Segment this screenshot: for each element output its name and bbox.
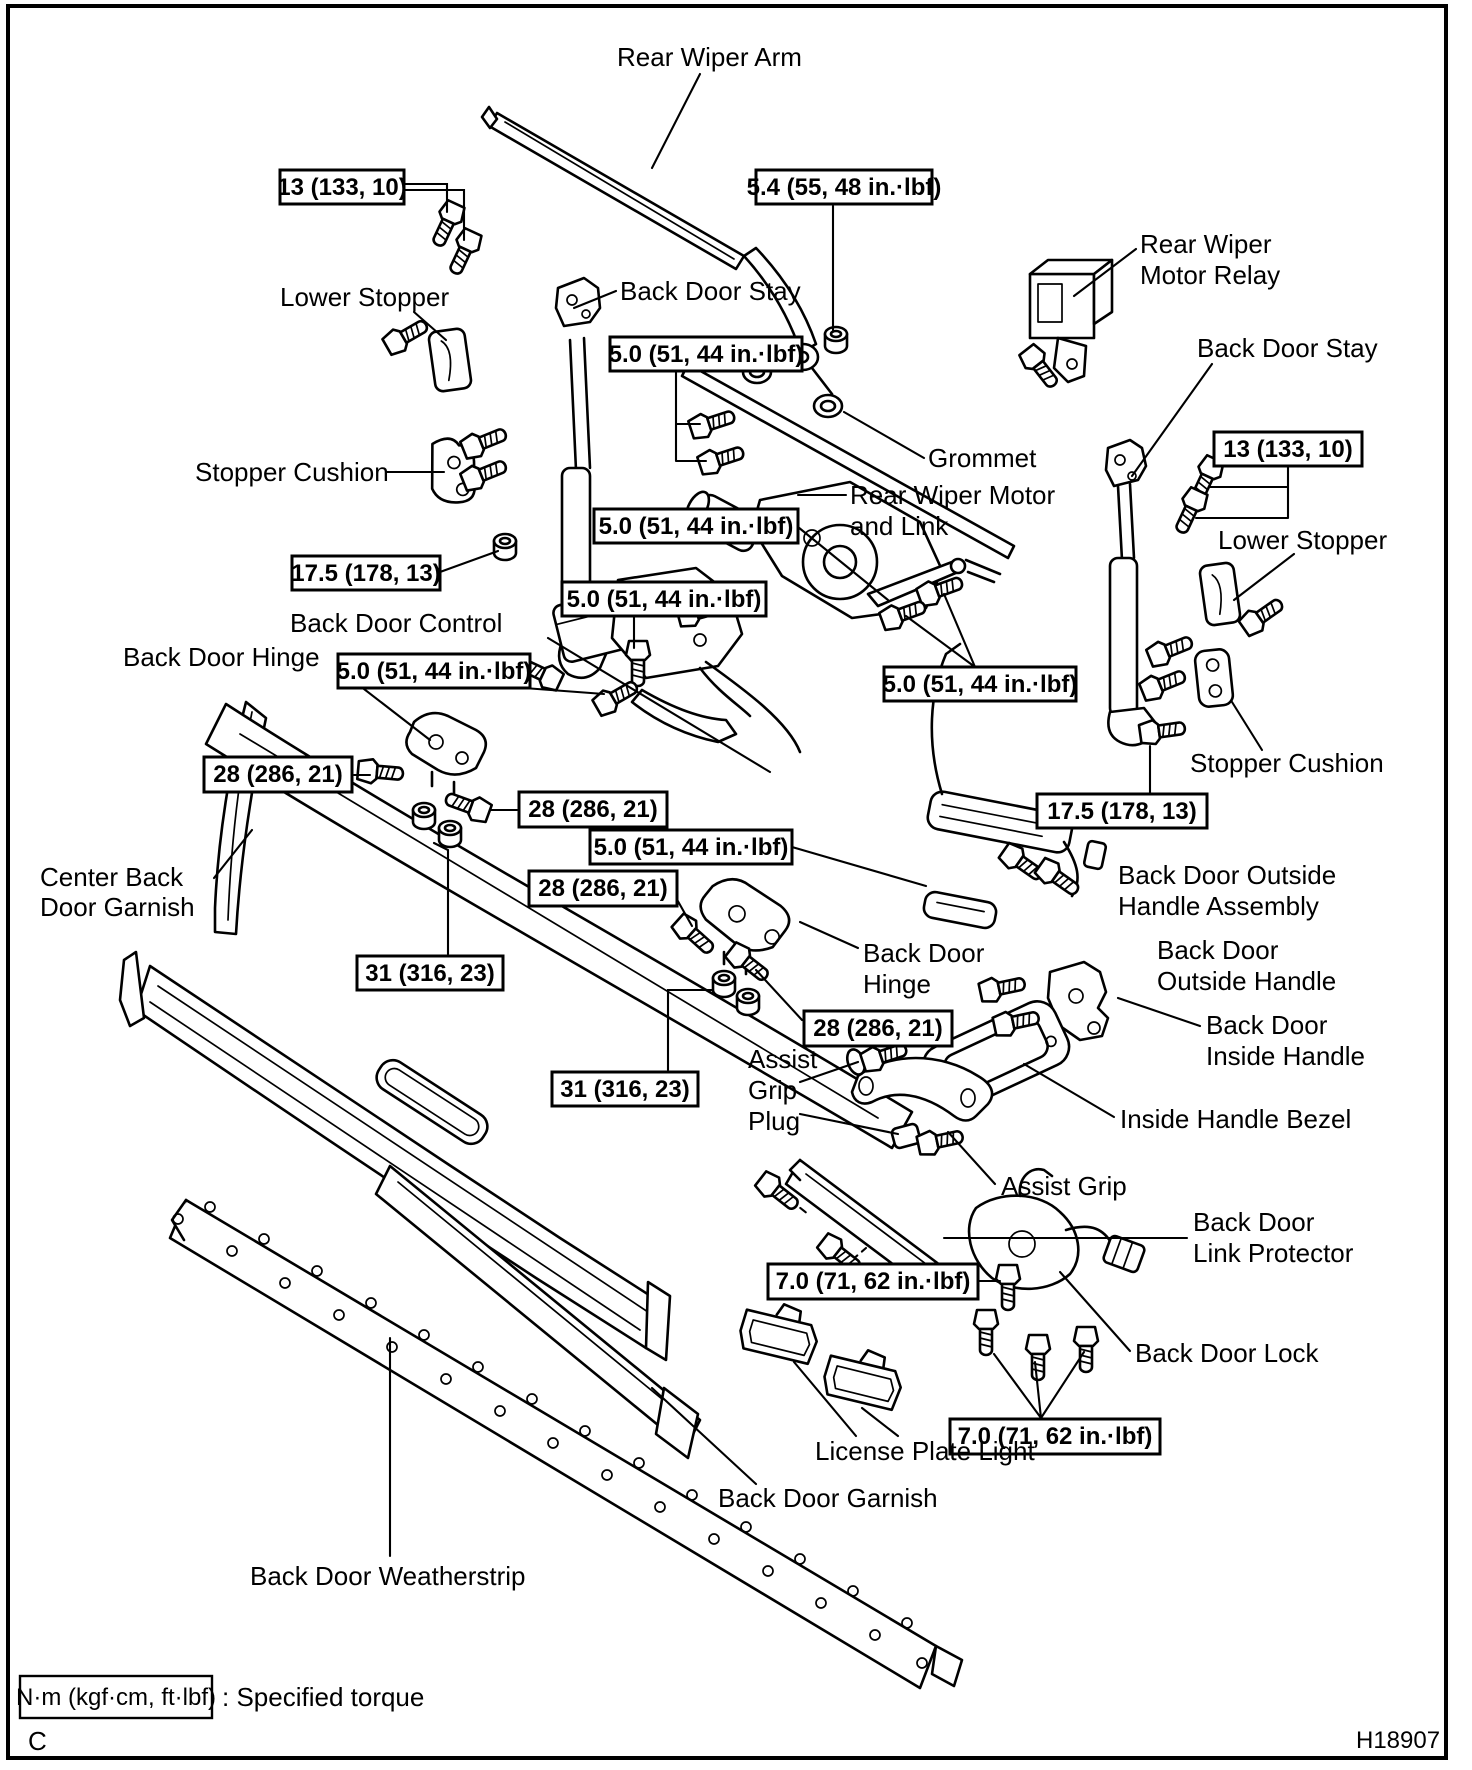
label-back-door-lock: Back Door Lock bbox=[1135, 1338, 1320, 1368]
torque-box-54: 5.4 (55, 48 in.·lbf) bbox=[747, 170, 942, 204]
torque-value: 28 (286, 21) bbox=[538, 875, 667, 902]
torque-value: 17.5 (178, 13) bbox=[1047, 798, 1196, 825]
torque-value: 5.0 (51, 44 in.·lbf) bbox=[567, 586, 762, 613]
torque-legend: N·m (kgf·cm, ft·lbf) : Specified torque bbox=[16, 1676, 424, 1718]
label-back-door-stay-right: Back Door Stay bbox=[1197, 333, 1378, 363]
torque-box-50-f: 5.0 (51, 44 in.·lbf) bbox=[590, 830, 792, 864]
torque-value: 28 (286, 21) bbox=[213, 761, 342, 788]
diagram-canvas: 13 (133, 10) 5.4 (55, 48 in.·lbf) 5.0 (5… bbox=[0, 0, 1472, 1770]
label-outside-handle-assembly-1: Back Door Outside bbox=[1118, 860, 1336, 890]
label-back-door-hinge-left: Back Door Hinge bbox=[123, 642, 320, 672]
label-back-door-hinge-center-1: Back Door bbox=[863, 938, 985, 968]
torque-box-31-1: 31 (316, 23) bbox=[357, 956, 503, 990]
label-inside-handle-1: Back Door bbox=[1206, 1010, 1328, 1040]
torque-value: 31 (316, 23) bbox=[365, 960, 494, 987]
figure-code: H18907 bbox=[1356, 1727, 1440, 1754]
torque-value: 5.0 (51, 44 in.·lbf) bbox=[599, 513, 794, 540]
label-license-plate-light: License Plate Light bbox=[815, 1436, 1035, 1466]
label-stopper-cushion-right: Stopper Cushion bbox=[1190, 748, 1384, 778]
label-outside-handle-1: Back Door bbox=[1157, 935, 1279, 965]
label-back-door-stay-left: Back Door Stay bbox=[620, 276, 801, 306]
torque-box-50-e: 5.0 (51, 44 in.·lbf) bbox=[883, 667, 1078, 701]
label-inside-handle-2: Inside Handle bbox=[1206, 1041, 1365, 1071]
label-outside-handle-2: Outside Handle bbox=[1157, 966, 1336, 996]
torque-value: 5.0 (51, 44 in.·lbf) bbox=[883, 671, 1078, 698]
torque-value: 17.5 (178, 13) bbox=[291, 560, 440, 587]
license-lamp-2 bbox=[820, 1340, 908, 1414]
label-assist-grip: Assist Grip bbox=[1001, 1171, 1127, 1201]
label-link-protector-2: Link Protector bbox=[1193, 1238, 1354, 1268]
label-assist-grip-plug-1: Assist bbox=[748, 1044, 818, 1074]
torque-value: 28 (286, 21) bbox=[528, 796, 657, 823]
label-assist-grip-plug-2: Grip bbox=[748, 1075, 797, 1105]
label-back-door-hinge-center-2: Hinge bbox=[863, 969, 931, 999]
legend-unit-box: N·m (kgf·cm, ft·lbf) bbox=[16, 1684, 216, 1711]
lower-stopper-left-part bbox=[428, 328, 472, 392]
torque-value: 7.0 (71, 62 in.·lbf) bbox=[776, 1268, 971, 1295]
torque-box-28-3: 28 (286, 21) bbox=[529, 871, 677, 906]
torque-value: 5.0 (51, 44 in.·lbf) bbox=[337, 658, 532, 685]
torque-box-70-1: 7.0 (71, 62 in.·lbf) bbox=[768, 1264, 978, 1299]
torque-value: 5.0 (51, 44 in.·lbf) bbox=[594, 834, 789, 861]
label-rear-wiper-motor-link-2: and Link bbox=[850, 511, 949, 541]
torque-box-28-4: 28 (286, 21) bbox=[804, 1011, 952, 1046]
stopper-cushion-right-part bbox=[1194, 648, 1234, 707]
back-door-hinge-left-part bbox=[406, 713, 485, 796]
page-marker: C bbox=[28, 1726, 47, 1756]
torque-box-50-d: 5.0 (51, 44 in.·lbf) bbox=[337, 654, 532, 688]
label-grommet: Grommet bbox=[928, 443, 1037, 473]
label-link-protector-1: Back Door bbox=[1193, 1207, 1315, 1237]
torque-box-175-right: 17.5 (178, 13) bbox=[1037, 794, 1207, 828]
torque-box-28-2: 28 (286, 21) bbox=[519, 792, 667, 827]
torque-box-13-right: 13 (133, 10) bbox=[1214, 432, 1362, 466]
label-lower-stopper-left: Lower Stopper bbox=[280, 282, 449, 312]
torque-value: 5.0 (51, 44 in.·lbf) bbox=[609, 341, 804, 368]
label-back-door-garnish: Back Door Garnish bbox=[718, 1483, 938, 1513]
torque-box-28-1: 28 (286, 21) bbox=[204, 757, 352, 792]
torque-value: 13 (133, 10) bbox=[1223, 436, 1352, 463]
torque-box-50-a: 5.0 (51, 44 in.·lbf) bbox=[609, 337, 804, 371]
torque-value: 13 (133, 10) bbox=[277, 174, 406, 201]
torque-value: 28 (286, 21) bbox=[813, 1015, 942, 1042]
torque-box-13-left: 13 (133, 10) bbox=[277, 170, 406, 204]
torque-box-50-c: 5.0 (51, 44 in.·lbf) bbox=[562, 582, 766, 616]
torque-box-50-b: 5.0 (51, 44 in.·lbf) bbox=[594, 509, 798, 543]
torque-value: 5.4 (55, 48 in.·lbf) bbox=[747, 174, 942, 201]
label-inside-handle-bezel: Inside Handle Bezel bbox=[1120, 1104, 1351, 1134]
label-back-door-control: Back Door Control bbox=[290, 608, 502, 638]
label-lower-stopper-right: Lower Stopper bbox=[1218, 525, 1387, 555]
grommet-part-2 bbox=[814, 395, 842, 417]
label-center-back-door-garnish-1: Center Back bbox=[40, 862, 184, 892]
torque-value: 31 (316, 23) bbox=[560, 1076, 689, 1103]
label-center-back-door-garnish-2: Door Garnish bbox=[40, 892, 195, 922]
exploded-parts-diagram: 13 (133, 10) 5.4 (55, 48 in.·lbf) 5.0 (5… bbox=[0, 0, 1472, 1770]
label-outside-handle-assembly-2: Handle Assembly bbox=[1118, 891, 1319, 921]
outside-handle-part bbox=[922, 890, 998, 929]
license-lamp-1 bbox=[736, 1294, 824, 1368]
label-rear-wiper-arm: Rear Wiper Arm bbox=[617, 42, 802, 72]
torque-box-31-2: 31 (316, 23) bbox=[552, 1072, 698, 1106]
legend-meaning: : Specified torque bbox=[222, 1682, 424, 1712]
back-door-panel bbox=[120, 952, 670, 1360]
label-rear-wiper-motor-relay-1: Rear Wiper bbox=[1140, 229, 1272, 259]
label-back-door-weatherstrip: Back Door Weatherstrip bbox=[250, 1561, 526, 1591]
label-assist-grip-plug-3: Plug bbox=[748, 1106, 800, 1136]
label-stopper-cushion-left: Stopper Cushion bbox=[195, 457, 389, 487]
lower-stopper-right-part bbox=[1199, 562, 1241, 626]
label-rear-wiper-motor-link-1: Rear Wiper Motor bbox=[850, 480, 1055, 510]
label-rear-wiper-motor-relay-2: Motor Relay bbox=[1140, 260, 1280, 290]
torque-box-175-left: 17.5 (178, 13) bbox=[291, 556, 440, 590]
